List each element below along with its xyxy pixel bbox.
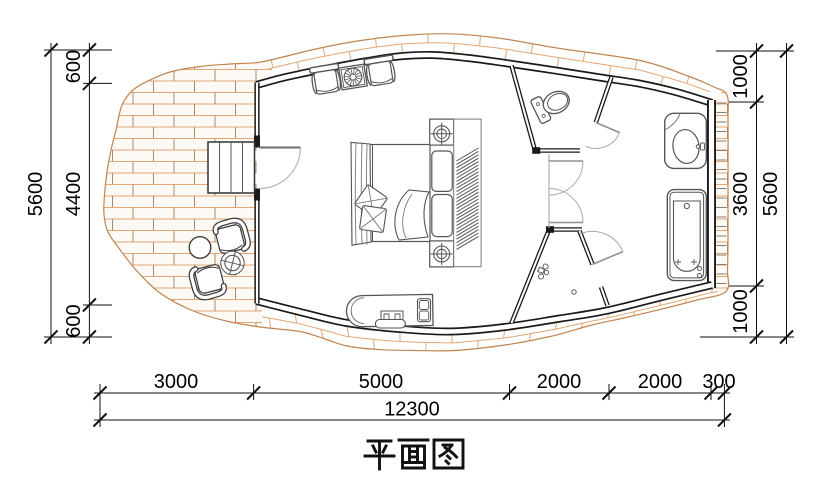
svg-text:2000: 2000 bbox=[638, 371, 683, 393]
svg-text:1000: 1000 bbox=[730, 289, 752, 334]
svg-text:5600: 5600 bbox=[25, 172, 47, 217]
svg-text:4400: 4400 bbox=[63, 172, 85, 217]
svg-text:5000: 5000 bbox=[359, 371, 404, 393]
svg-text:3000: 3000 bbox=[154, 371, 199, 393]
svg-text:600: 600 bbox=[63, 304, 85, 337]
svg-text:300: 300 bbox=[702, 371, 735, 393]
svg-text:600: 600 bbox=[63, 50, 85, 83]
svg-text:1000: 1000 bbox=[730, 54, 752, 99]
svg-text:3600: 3600 bbox=[730, 172, 752, 217]
svg-text:12300: 12300 bbox=[384, 399, 440, 421]
svg-text:5600: 5600 bbox=[760, 172, 782, 217]
svg-text:2000: 2000 bbox=[537, 371, 582, 393]
